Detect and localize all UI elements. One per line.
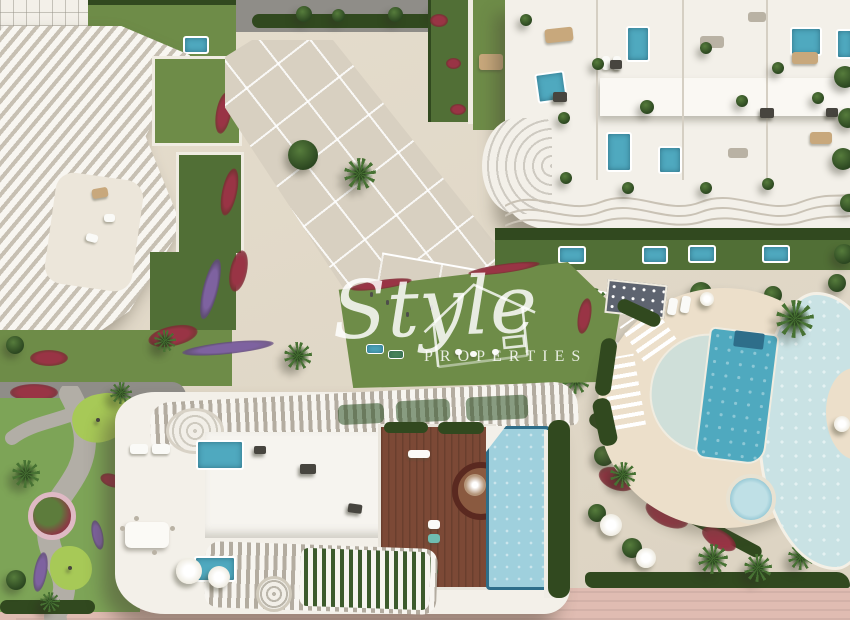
sun-lounger [428, 520, 440, 529]
tree [828, 274, 846, 292]
dining-chair [120, 526, 125, 531]
roof-divider [766, 0, 768, 180]
golf-flag [96, 418, 100, 422]
tree [296, 6, 312, 22]
rooftop-planter [700, 182, 712, 194]
aerial-site-plan: Style PROPERTIES [0, 0, 850, 620]
firepit-parasol [464, 474, 486, 496]
rooftop-pool [606, 132, 632, 172]
rooftop-planter [762, 178, 774, 190]
flower-bed-red [430, 14, 448, 27]
rooftop-planter [736, 95, 748, 107]
rooftop-planter [640, 100, 654, 114]
skylight-box [610, 60, 622, 69]
deck-parasol [700, 292, 714, 306]
sun-lounger [130, 444, 148, 454]
rooftop-furniture [810, 132, 832, 144]
rooftop-furniture [792, 52, 818, 64]
roof-divider [596, 0, 598, 180]
rooftop-furniture [728, 148, 748, 158]
planter-under-louvers [299, 548, 431, 611]
deck-table [408, 450, 430, 458]
golf-flag [68, 566, 72, 570]
garden-dining-table [479, 54, 503, 70]
ne-building-facade-waves [505, 176, 850, 232]
beach-parasol [834, 416, 850, 432]
rooftop-planter [558, 112, 570, 124]
palm [154, 330, 176, 352]
skylight-box [760, 108, 774, 118]
skylight-box [347, 503, 362, 514]
garden-hedge [548, 420, 570, 598]
playground-equipment [366, 344, 384, 354]
spiral-stair [256, 576, 292, 612]
tree [834, 66, 850, 88]
rooftop-planter [700, 42, 712, 54]
jacuzzi-pool [726, 474, 776, 524]
tree [6, 336, 24, 354]
flower-bed-red [30, 350, 68, 366]
flower-bed-red [450, 104, 466, 115]
rooftop-planter [812, 92, 824, 104]
sun-lounger [428, 534, 440, 543]
palm [744, 554, 772, 582]
private-pool [762, 245, 790, 263]
playground-equipment [455, 349, 462, 355]
private-pool [642, 246, 668, 264]
tree [288, 140, 318, 170]
outdoor-dining-set [125, 522, 169, 548]
palm [698, 544, 728, 574]
private-pool [688, 245, 716, 263]
dining-chair [134, 516, 139, 521]
skylight-box [254, 446, 266, 454]
tree [834, 244, 850, 264]
skylight-box [553, 92, 567, 102]
garden-panel [150, 252, 236, 330]
rooftop-furniture [544, 27, 573, 44]
rooftop-pool [836, 29, 850, 59]
plunge-pool [196, 440, 244, 470]
person [406, 312, 409, 317]
garden-hedge [495, 228, 850, 240]
planter-under-louvers [395, 399, 450, 424]
tree [388, 7, 403, 22]
tree [332, 9, 345, 22]
palm [12, 460, 40, 488]
garden-parasol [636, 548, 656, 568]
planter-under-louvers [465, 394, 528, 421]
dining-chair [152, 550, 157, 555]
playground-equipment [388, 350, 404, 359]
deck-planter [438, 422, 484, 434]
person [370, 292, 373, 297]
rooftop-planter [772, 62, 784, 74]
rooftop-furniture [748, 12, 766, 22]
rooftop-pool [658, 146, 682, 174]
tree [832, 148, 850, 170]
garden-parasol [600, 514, 622, 536]
skylight-box [300, 464, 316, 474]
palm [776, 300, 814, 338]
roof-parasol [208, 566, 230, 588]
tree [6, 570, 26, 590]
rooftop-planter [622, 182, 634, 194]
person [430, 305, 433, 310]
dining-chair [170, 526, 175, 531]
sun-lounger [152, 444, 170, 454]
rooftop-planter [592, 58, 604, 70]
skylight-box [826, 108, 838, 117]
playground-equipment [470, 351, 477, 357]
flower-bed-red [446, 58, 461, 69]
deck-planter [384, 422, 428, 433]
roof-divider [682, 0, 684, 180]
palm [284, 342, 312, 370]
round-flower-bed [28, 492, 76, 540]
roof-pool [486, 426, 550, 590]
playground-equipment [492, 349, 499, 355]
rooftop-pool [626, 26, 650, 62]
palm [610, 462, 636, 488]
rooftop-planter [520, 14, 532, 26]
roof-parasol [176, 558, 202, 584]
rooftop-planter [560, 172, 572, 184]
palm [344, 158, 376, 190]
person [386, 300, 389, 305]
palm [40, 592, 60, 612]
garden-hedge [585, 572, 850, 588]
patio-furniture [104, 214, 115, 222]
planter-under-louvers [338, 403, 385, 425]
private-pool [558, 246, 586, 264]
